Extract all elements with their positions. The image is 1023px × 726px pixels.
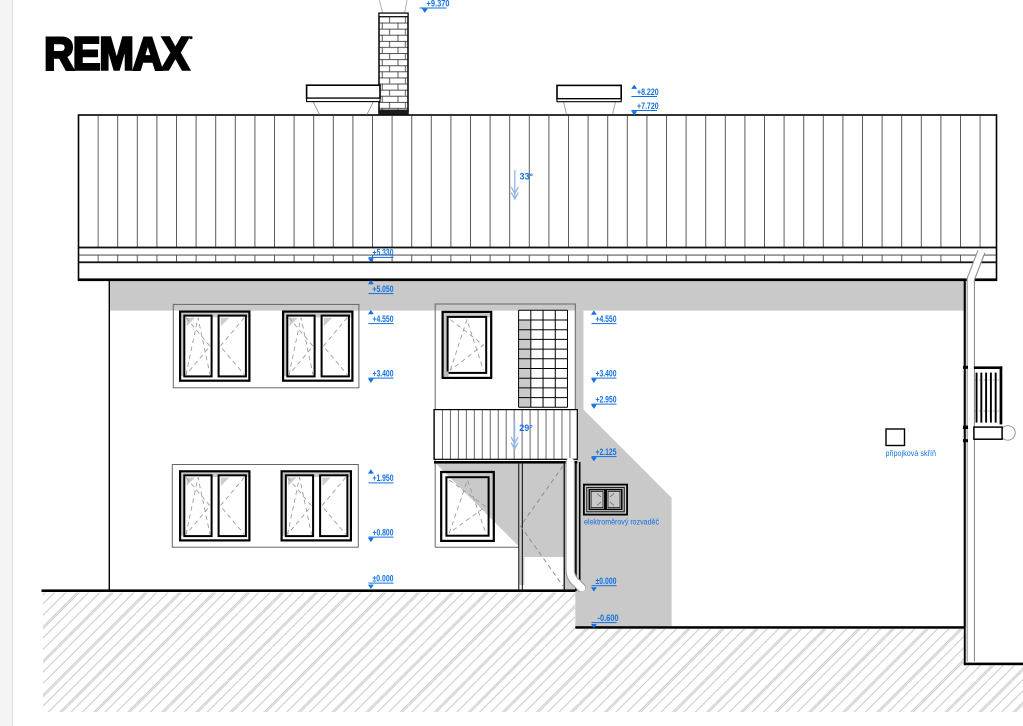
svg-text:připojková skříň: připojková skříň [886, 448, 937, 458]
svg-text:33°: 33° [520, 172, 534, 182]
svg-text:+5.330: +5.330 [373, 248, 394, 258]
svg-text:±0.000: ±0.000 [373, 573, 394, 583]
svg-text:+8.220: +8.220 [637, 87, 659, 97]
svg-text:+5.050: +5.050 [373, 284, 394, 294]
svg-text:+9.370: +9.370 [427, 0, 450, 8]
svg-text:+4.550: +4.550 [596, 314, 617, 324]
svg-text:+4.550: +4.550 [373, 314, 394, 324]
svg-text:-0.600: -0.600 [598, 613, 619, 623]
svg-text:+3.400: +3.400 [596, 368, 617, 378]
svg-text:REMAX: REMAX [44, 27, 189, 79]
svg-text:+2.950: +2.950 [596, 394, 617, 404]
svg-text:+3.400: +3.400 [373, 368, 394, 378]
svg-text:+0.800: +0.800 [373, 527, 394, 537]
svg-text:+1.950: +1.950 [373, 473, 394, 483]
svg-text:+7.720: +7.720 [637, 101, 659, 111]
svg-text:±0.000: ±0.000 [596, 576, 617, 586]
svg-text:29°: 29° [519, 423, 533, 433]
svg-text:elektroměrový rozvaděč: elektroměrový rozvaděč [584, 516, 660, 526]
svg-text:+2.125: +2.125 [596, 447, 617, 457]
